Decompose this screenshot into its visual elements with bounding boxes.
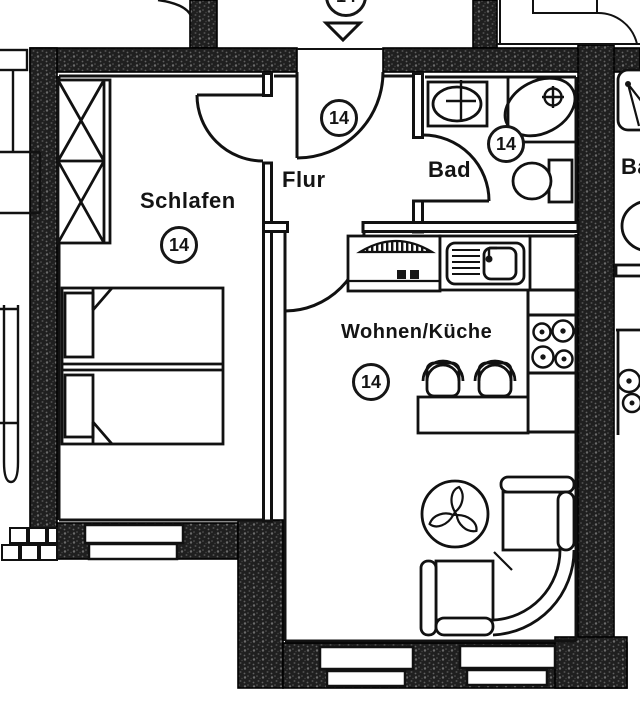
- room-number-wohnen-kueche: 14: [352, 363, 390, 401]
- chair-symbol-right: [475, 361, 515, 396]
- room-number-bad: 14: [487, 125, 525, 163]
- room-number-bad-text: 14: [496, 134, 516, 155]
- entrance-arrow-icon: [326, 23, 360, 40]
- wall-segment: [30, 48, 297, 72]
- room-number-flur-text: 14: [329, 108, 349, 129]
- wall-segment: [473, 0, 497, 48]
- room-label-schlafen: Schlafen: [140, 188, 236, 214]
- wohnen-window-left: [320, 647, 413, 686]
- wardrobe-symbol: [58, 80, 110, 243]
- plan-drawing: [0, 0, 640, 719]
- chair-symbol-left: [423, 361, 463, 396]
- table-symbol: [418, 397, 528, 433]
- plant-symbol: [422, 481, 488, 547]
- schlafen-window: [85, 525, 183, 559]
- wohnen-window-right: [460, 646, 555, 685]
- cooktop-symbol: [533, 321, 574, 368]
- wall-segment: [238, 520, 283, 688]
- entrance-unit-number-text: 14: [336, 0, 356, 7]
- room-number-schlafen: 14: [160, 226, 198, 264]
- room-label-wohnen-kueche: Wohnen/Küche: [341, 321, 492, 344]
- toilet-symbol: [513, 160, 572, 202]
- room-label-flur: Flur: [282, 167, 326, 193]
- room-number-wohnen-text: 14: [361, 372, 381, 393]
- room-label-bad: Bad: [428, 157, 471, 183]
- floor-plan: Schlafen Flur Bad Wohnen/Küche Bad 14 14…: [0, 0, 640, 719]
- wall-segment: [555, 637, 627, 688]
- wall-segment: [30, 48, 57, 559]
- schlafen-door: [197, 95, 263, 161]
- room-number-schlafen-text: 14: [169, 235, 189, 256]
- washbasin-symbol: [428, 80, 487, 126]
- room-label-neighbor-bad: Bad: [621, 154, 640, 180]
- kitchen-sink-symbol: [440, 236, 530, 290]
- brick-steps: [2, 528, 57, 560]
- neighbor-top-right-context: [497, 0, 640, 44]
- neighbor-top-left-door-arc: [158, 0, 191, 16]
- wall-segment: [190, 0, 217, 48]
- room-number-flur: 14: [320, 99, 358, 137]
- neighbor-right-kitchen: [616, 330, 640, 435]
- double-bed-symbol: [62, 288, 223, 444]
- stove-symbol: [348, 236, 440, 291]
- wall-segment: [578, 45, 614, 643]
